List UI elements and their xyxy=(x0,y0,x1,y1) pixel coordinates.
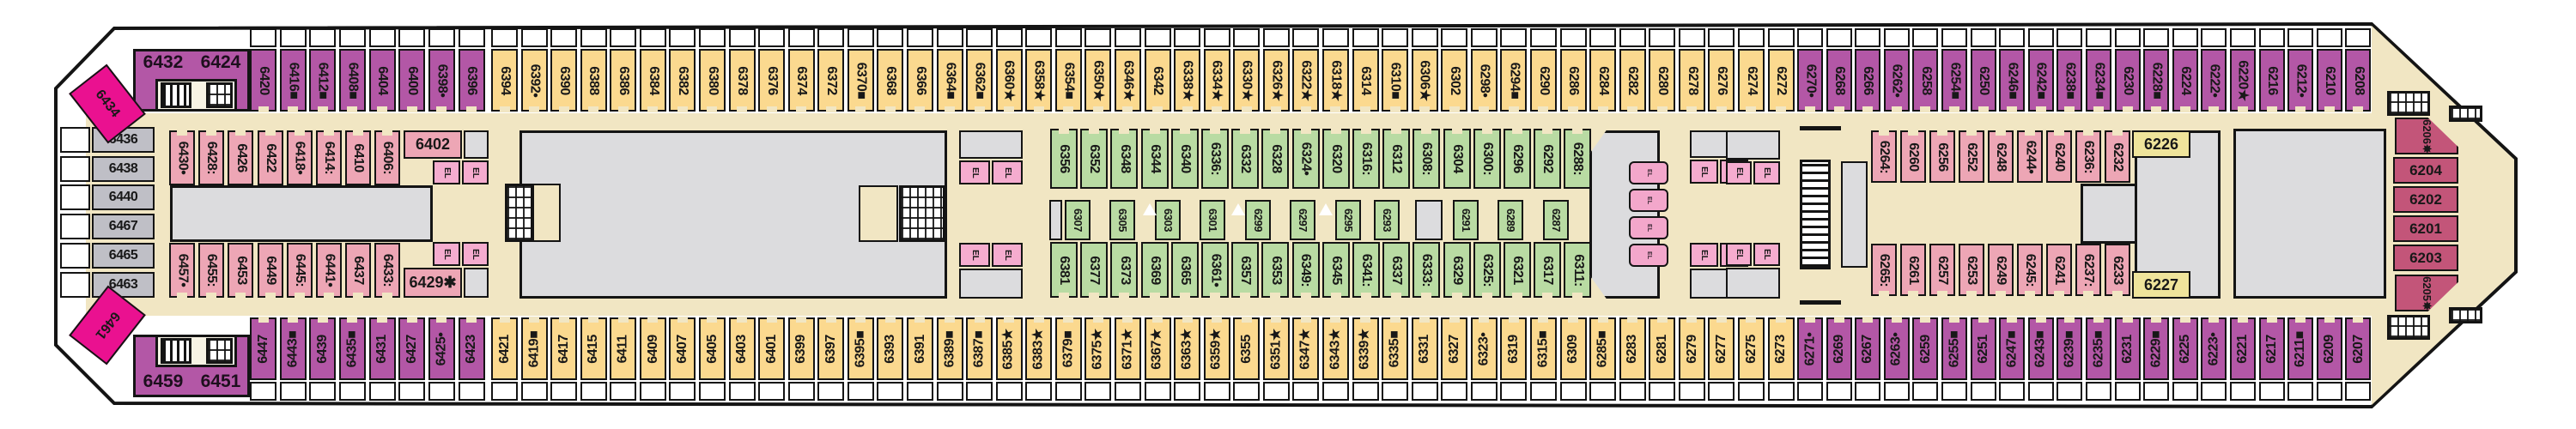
cabin-6270[interactable]: 6270• xyxy=(1797,49,1823,112)
cabin-6311[interactable]: 6311: xyxy=(1564,242,1591,298)
elevator[interactable]: EL xyxy=(462,160,489,184)
cabin-6232[interactable]: 6232 xyxy=(2105,130,2130,183)
balcony xyxy=(758,382,785,401)
cabin-6465[interactable]: 6465 xyxy=(92,243,155,269)
cabin-6263[interactable]: 6263• xyxy=(1884,317,1910,380)
cabin-6385[interactable]: 6385★ xyxy=(996,317,1023,380)
balcony xyxy=(669,28,696,47)
cabin-6253[interactable]: 6253 xyxy=(1959,244,1984,296)
cabin-6410[interactable]: 6410 xyxy=(345,130,371,185)
cabin-6426[interactable]: 6426 xyxy=(228,130,253,185)
cabin-6373[interactable]: 6373 xyxy=(1110,242,1138,298)
cabin-6443[interactable]: 6443■ xyxy=(280,317,307,380)
cabin-6393[interactable]: 6393 xyxy=(877,317,903,380)
balcony xyxy=(610,28,636,47)
cabin-6381[interactable]: 6381 xyxy=(1050,242,1078,298)
cabin-6275[interactable]: 6275 xyxy=(1738,317,1765,380)
cabin-6229[interactable]: 6229■ xyxy=(2143,317,2169,380)
cabin-6419[interactable]: 6419■ xyxy=(521,317,548,380)
cabin-6272[interactable]: 6272 xyxy=(1768,49,1795,112)
cabin-6401[interactable]: 6401 xyxy=(758,317,785,380)
cabin-6405[interactable]: 6405 xyxy=(699,317,726,380)
elevator[interactable]: EL xyxy=(462,242,489,266)
cabin-6407[interactable]: 6407 xyxy=(669,317,696,380)
cabin-6400[interactable]: 6400 xyxy=(398,49,425,112)
cabin-door xyxy=(2287,241,2297,247)
cabin-6309[interactable]: 6309 xyxy=(1560,317,1587,380)
cabin-6277[interactable]: 6277 xyxy=(1708,317,1735,380)
cabin-6271[interactable]: 6271• xyxy=(1797,317,1823,380)
cabin-6203[interactable]: 6203 xyxy=(2393,245,2458,271)
cabin-6383[interactable]: 6383★ xyxy=(1025,317,1052,380)
cabin-door xyxy=(1301,317,1311,323)
cabin-6356[interactable]: 6356 xyxy=(1050,129,1078,189)
cabin-6329[interactable]: 6329 xyxy=(1443,242,1471,298)
balcony xyxy=(550,28,577,47)
cabin-6358[interactable]: 6358★ xyxy=(1025,49,1052,112)
cabin-6328[interactable]: 6328 xyxy=(1261,129,1289,189)
cabin-6441[interactable]: 6441• xyxy=(316,243,342,298)
cabin-6361[interactable]: 6361• xyxy=(1201,242,1229,298)
cabin-6372[interactable]: 6372 xyxy=(817,49,844,112)
cabin-6340[interactable]: 6340 xyxy=(1171,129,1199,189)
cabin-6242[interactable]: 6242■ xyxy=(2028,49,2054,112)
cabin-6432[interactable]: 6432 xyxy=(135,51,191,74)
cabin-6430[interactable]: 6430• xyxy=(169,130,195,185)
cabin-6212[interactable]: 6212• xyxy=(2287,49,2313,112)
cabin-6331[interactable]: 6331 xyxy=(1412,317,1438,380)
cabin-6294[interactable]: 6294■ xyxy=(1500,49,1527,112)
cabin-6223[interactable]: 6223• xyxy=(2201,317,2227,380)
cabin-6306[interactable]: 6306★ xyxy=(1412,49,1438,112)
cabin-6269[interactable]: 6269 xyxy=(1826,317,1852,380)
cabin-6455[interactable]: 6455: xyxy=(198,243,224,298)
cabin-6343[interactable]: 6343★ xyxy=(1322,317,1349,380)
cabin-6420[interactable]: 6420 xyxy=(250,49,276,112)
cabin-door xyxy=(1598,317,1608,323)
cabin-6423[interactable]: 6423 xyxy=(459,317,485,380)
balcony xyxy=(1884,28,1910,47)
cabin-6334[interactable]: 6334★ xyxy=(1204,49,1230,112)
elevator[interactable]: EL xyxy=(1753,243,1780,266)
cabin-6370[interactable]: 6370■ xyxy=(848,49,874,112)
cabin-6396[interactable]: 6396 xyxy=(459,49,485,112)
cabin-6451[interactable]: 6451 xyxy=(193,371,248,393)
cabin-6379[interactable]: 6379■ xyxy=(1055,317,1082,380)
cabin-6433[interactable]: 6433: xyxy=(374,243,400,298)
cabin-6247[interactable]: 6247■ xyxy=(1999,317,2025,380)
cabin-6310[interactable]: 6310■ xyxy=(1382,49,1408,112)
cabin-6259[interactable]: 6259 xyxy=(1912,317,1938,380)
cabin-door xyxy=(1966,130,1977,136)
cabin-6217[interactable]: 6217 xyxy=(2259,317,2285,380)
cabin-6302[interactable]: 6302 xyxy=(1441,49,1467,112)
cabin-6293[interactable]: 6293 xyxy=(1374,200,1400,240)
cabin-6362[interactable]: 6362■ xyxy=(966,49,993,112)
cabin-6355[interactable]: 6355 xyxy=(1233,317,1260,380)
elevator[interactable]: EL xyxy=(433,160,460,184)
cabin-6316[interactable]: 6316: xyxy=(1352,129,1380,189)
cabin-6386[interactable]: 6386 xyxy=(610,49,636,112)
cabin-6245[interactable]: 6245: xyxy=(2017,244,2043,296)
cabin-6374[interactable]: 6374 xyxy=(788,49,815,112)
cabin-6339[interactable]: 6339★ xyxy=(1352,317,1379,380)
cabin-6237[interactable]: 6237: xyxy=(2075,244,2101,296)
cabin-6332[interactable]: 6332 xyxy=(1231,129,1259,189)
cabin-6402[interactable]: 6402 xyxy=(404,130,462,159)
cabin-6296[interactable]: 6296 xyxy=(1504,129,1531,189)
cabin-6353[interactable]: 6353 xyxy=(1261,242,1289,298)
elevator[interactable]: EL xyxy=(959,160,990,184)
cabin-6320[interactable]: 6320 xyxy=(1322,129,1350,189)
cabin-6440[interactable]: 6440 xyxy=(92,184,155,210)
cabin-6236[interactable]: 6236: xyxy=(2075,130,2101,183)
cabin-6324[interactable]: 6324• xyxy=(1292,129,1320,189)
cabin-6322[interactable]: 6322★ xyxy=(1292,49,1319,112)
cabin-6234[interactable]: 6234■ xyxy=(2086,49,2111,112)
cabin-6300[interactable]: 6300: xyxy=(1473,129,1501,189)
cabin-6201[interactable]: 6201 xyxy=(2393,215,2458,242)
cabin-6235[interactable]: 6235■ xyxy=(2086,317,2111,380)
cabin-6278[interactable]: 6278 xyxy=(1679,49,1705,112)
cabin-6301[interactable]: 6301 xyxy=(1200,200,1225,240)
cabin-6258[interactable]: 6258 xyxy=(1912,49,1938,112)
cabin-6286[interactable]: 6286 xyxy=(1560,49,1587,112)
cabin-6382[interactable]: 6382 xyxy=(669,49,696,112)
cabin-6326[interactable]: 6326★ xyxy=(1263,49,1290,112)
cabin-6230[interactable]: 6230 xyxy=(2115,49,2141,112)
cabin-6389[interactable]: 6389■ xyxy=(937,317,963,380)
cabin-6297[interactable]: 6297 xyxy=(1290,200,1315,240)
cabin-6404[interactable]: 6404 xyxy=(369,49,396,112)
cabin-6439[interactable]: 6439 xyxy=(309,317,336,380)
cabin-6327[interactable]: 6327 xyxy=(1441,317,1467,380)
cabin-6364[interactable]: 6364■ xyxy=(937,49,963,112)
cabin-6254[interactable]: 6254■ xyxy=(1941,49,1967,112)
cabin-6280[interactable]: 6280 xyxy=(1649,49,1675,112)
balcony xyxy=(2230,28,2256,47)
cabin-6257[interactable]: 6257 xyxy=(1929,244,1955,296)
cabin-6238[interactable]: 6238■ xyxy=(2057,49,2082,112)
cabin-door xyxy=(1331,128,1341,134)
cabin-6369[interactable]: 6369 xyxy=(1141,242,1169,298)
cabin-6264[interactable]: 6264: xyxy=(1871,130,1897,183)
cabin-6239[interactable]: 6239■ xyxy=(2057,317,2082,380)
cabin-door xyxy=(1122,106,1133,112)
cabin-6211[interactable]: 6211■ xyxy=(2287,317,2313,380)
cabin-6416[interactable]: 6416■ xyxy=(280,49,307,112)
cabin-6315[interactable]: 6315■ xyxy=(1530,317,1557,380)
cabin-6417[interactable]: 6417 xyxy=(550,317,577,380)
cabin-6346[interactable]: 6346★ xyxy=(1115,49,1141,112)
cabin-6351[interactable]: 6351★ xyxy=(1263,317,1290,380)
cabin-6354[interactable]: 6354■ xyxy=(1055,49,1082,112)
cabin-6249[interactable]: 6249 xyxy=(1988,244,2014,296)
balcony xyxy=(1971,382,1996,401)
cabin-6345[interactable]: 6345 xyxy=(1322,242,1350,298)
cabin-6268[interactable]: 6268 xyxy=(1826,49,1852,112)
cabin-door xyxy=(2064,106,2075,112)
cabin-6233[interactable]: 6233 xyxy=(2105,244,2130,296)
cabin-6295[interactable]: 6295 xyxy=(1335,200,1361,240)
cabin-6347[interactable]: 6347★ xyxy=(1292,317,1319,380)
cabin-6281[interactable]: 6281 xyxy=(1649,317,1675,380)
cabin-6366[interactable]: 6366 xyxy=(907,49,933,112)
cabin-6325[interactable]: 6325: xyxy=(1473,242,1501,298)
cabin-6248[interactable]: 6248 xyxy=(1988,130,2014,183)
cabin-door xyxy=(1716,317,1727,323)
cabin-door xyxy=(529,317,539,323)
cabin-6308[interactable]: 6308: xyxy=(1413,129,1440,189)
cabin-6371[interactable]: 6371★ xyxy=(1115,317,1141,380)
cabin-6319[interactable]: 6319 xyxy=(1500,317,1527,380)
cabin-6240[interactable]: 6240 xyxy=(2046,130,2072,183)
cabin-6415[interactable]: 6415 xyxy=(580,317,607,380)
cabin-door xyxy=(1242,106,1252,112)
cabin-6224[interactable]: 6224 xyxy=(2172,49,2198,112)
glass-elevator[interactable]: EL xyxy=(1629,216,1668,239)
cabin-6459[interactable]: 6459 xyxy=(135,371,191,393)
cabin-6304[interactable]: 6304 xyxy=(1443,129,1471,189)
cabin-6435[interactable]: 6435■ xyxy=(339,317,366,380)
cabin-6202[interactable]: 6202 xyxy=(2393,186,2458,213)
stairs xyxy=(206,82,233,108)
cabin-6204[interactable]: 6204 xyxy=(2393,157,2458,184)
cabin-6220[interactable]: 6220★ xyxy=(2230,49,2256,112)
cabin-6225[interactable]: 6225 xyxy=(2172,317,2198,380)
cabin-6342[interactable]: 6342 xyxy=(1145,49,1171,112)
cabin-6350[interactable]: 6350★ xyxy=(1084,49,1111,112)
cabin-6273[interactable]: 6273 xyxy=(1768,317,1795,380)
cabin-door xyxy=(559,106,569,112)
cabin-door xyxy=(1572,128,1583,134)
cabin-door xyxy=(1361,128,1371,134)
cabin-6390[interactable]: 6390 xyxy=(550,49,577,112)
cabin-6336[interactable]: 6336: xyxy=(1201,129,1229,189)
cabin-6378[interactable]: 6378 xyxy=(729,49,756,112)
elevator[interactable]: EL xyxy=(959,243,990,267)
cabin-6438[interactable]: 6438 xyxy=(92,156,155,182)
cabin-6267[interactable]: 6267 xyxy=(1855,317,1880,380)
balcony xyxy=(1530,382,1557,401)
cabin-6209[interactable]: 6209 xyxy=(2317,317,2342,380)
cabin-door xyxy=(1746,106,1756,112)
cabin-6431[interactable]: 6431 xyxy=(369,317,396,380)
cabin-6207[interactable]: 6207 xyxy=(2345,317,2371,380)
wall xyxy=(1800,126,1841,130)
cabin-6341[interactable]: 6341: xyxy=(1352,242,1380,298)
cabin-6291[interactable]: 6291 xyxy=(1453,200,1479,240)
cabin-6323[interactable]: 6323• xyxy=(1471,317,1498,380)
cabin-6408[interactable]: 6408■ xyxy=(339,49,366,112)
cabin-6403[interactable]: 6403 xyxy=(729,317,756,380)
glass-elevator[interactable]: EL xyxy=(1629,189,1668,212)
cabin-6359[interactable]: 6359★ xyxy=(1204,317,1230,380)
cabin-6262[interactable]: 6262• xyxy=(1884,49,1910,112)
balcony xyxy=(1941,28,1967,47)
cabin-6303[interactable]: 6303 xyxy=(1155,200,1181,240)
cabin-door xyxy=(1949,317,1959,323)
balcony xyxy=(2115,382,2141,401)
cabin-6290[interactable]: 6290 xyxy=(1530,49,1557,112)
cabin-6266[interactable]: 6266 xyxy=(1855,49,1880,112)
cabin-door xyxy=(2093,106,2104,112)
cabin-6447[interactable]: 6447 xyxy=(250,317,276,380)
cabin-6422[interactable]: 6422 xyxy=(258,130,283,185)
cabin-6241[interactable]: 6241 xyxy=(2046,244,2072,296)
cabin-6337[interactable]: 6337 xyxy=(1382,242,1410,298)
cabin-door xyxy=(1093,106,1103,112)
cabin-6244[interactable]: 6244• xyxy=(2017,130,2043,183)
cabin-6395[interactable]: 6395■ xyxy=(848,317,874,380)
elevator[interactable]: EL xyxy=(433,242,460,266)
cabin-6367[interactable]: 6367★ xyxy=(1145,317,1171,380)
cabin-6377[interactable]: 6377 xyxy=(1080,242,1108,298)
cabin-6222[interactable]: 6222• xyxy=(2201,49,2227,112)
cabin-6428[interactable]: 6428: xyxy=(198,130,224,185)
cabin-6384[interactable]: 6384 xyxy=(640,49,666,112)
cabin-6287[interactable]: 6287 xyxy=(1543,200,1569,240)
cabin-6406[interactable]: 6406: xyxy=(374,130,400,185)
cabin-6344[interactable]: 6344 xyxy=(1141,129,1169,189)
cabin-6252[interactable]: 6252 xyxy=(1959,130,1984,183)
cabin-6265[interactable]: 6265: xyxy=(1871,244,1897,296)
cabin-6260[interactable]: 6260 xyxy=(1900,130,1926,183)
cabin-6412[interactable]: 6412■ xyxy=(309,49,336,112)
cabin-door xyxy=(1452,128,1462,134)
cabin-6425[interactable]: 6425• xyxy=(428,317,455,380)
cabin-6392[interactable]: 6392• xyxy=(521,49,548,112)
cabin-6453[interactable]: 6453 xyxy=(228,243,253,298)
cabin-6365[interactable]: 6365 xyxy=(1171,242,1199,298)
cabin-6449[interactable]: 6449 xyxy=(258,243,283,298)
balcony xyxy=(877,382,903,401)
cabin-6429[interactable]: 6429✱ xyxy=(404,268,462,298)
cabin-door xyxy=(2353,106,2363,112)
cabin-6318[interactable]: 6318★ xyxy=(1322,49,1349,112)
cabin-6243[interactable]: 6243■ xyxy=(2028,317,2054,380)
cabin-6307[interactable]: 6307 xyxy=(1065,200,1091,240)
cabin-6208[interactable]: 6208 xyxy=(2345,49,2371,112)
cabin-6284[interactable]: 6284 xyxy=(1589,49,1616,112)
cabin-6226[interactable]: 6226 xyxy=(2132,130,2190,158)
cabin-6292[interactable]: 6292 xyxy=(1534,129,1561,189)
cabin-6388[interactable]: 6388 xyxy=(580,49,607,112)
cabin-door xyxy=(1391,293,1401,299)
cabin-6305[interactable]: 6305 xyxy=(1109,200,1135,240)
cabin-6421[interactable]: 6421 xyxy=(491,317,518,380)
cabin-6348[interactable]: 6348 xyxy=(1110,129,1138,189)
cabin-6414[interactable]: 6414: xyxy=(316,130,342,185)
cabin-6321[interactable]: 6321 xyxy=(1504,242,1531,298)
balcony xyxy=(1115,382,1141,401)
cabin-6317[interactable]: 6317 xyxy=(1534,242,1561,298)
cabin-6288[interactable]: 6288: xyxy=(1564,129,1591,189)
cabin-6330[interactable]: 6330★ xyxy=(1233,49,1260,112)
cabin-door xyxy=(1776,317,1786,323)
cabin-6299[interactable]: 6299 xyxy=(1245,200,1271,240)
cabin-door xyxy=(407,317,417,323)
cabin-door xyxy=(1657,106,1668,112)
cabin-6289[interactable]: 6289 xyxy=(1498,200,1523,240)
cabin-6276[interactable]: 6276 xyxy=(1708,49,1735,112)
cabin-6255[interactable]: 6255■ xyxy=(1941,317,1967,380)
cabin-6250[interactable]: 6250 xyxy=(1971,49,1996,112)
cabin-6335[interactable]: 6335■ xyxy=(1382,317,1408,380)
cabin-door xyxy=(1776,106,1786,112)
glass-elevator[interactable]: EL xyxy=(1629,244,1668,267)
cabin-6380[interactable]: 6380 xyxy=(699,49,726,112)
cabin-door xyxy=(2054,130,2064,136)
cabin-6338[interactable]: 6338★ xyxy=(1174,49,1200,112)
cabin-6314[interactable]: 6314 xyxy=(1352,49,1379,112)
cabin-door xyxy=(2007,317,2017,323)
elevator[interactable]: EL xyxy=(1690,160,1718,184)
cabin-6274[interactable]: 6274 xyxy=(1738,49,1765,112)
cabin-6283[interactable]: 6283 xyxy=(1619,317,1646,380)
cabin-6210[interactable]: 6210 xyxy=(2317,49,2342,112)
balcony xyxy=(937,28,963,47)
cabin-6246[interactable]: 6246■ xyxy=(1999,49,2025,112)
cabin-6411[interactable]: 6411 xyxy=(610,317,636,380)
cabin-6357[interactable]: 6357 xyxy=(1231,242,1259,298)
cabin-6261[interactable]: 6261 xyxy=(1900,244,1926,296)
cabin-6376[interactable]: 6376 xyxy=(758,49,785,112)
cabin-6312[interactable]: 6312 xyxy=(1382,129,1410,189)
cabin-6398[interactable]: 6398• xyxy=(428,49,455,112)
cabin-6368[interactable]: 6368 xyxy=(877,49,903,112)
cabin-6418[interactable]: 6418• xyxy=(287,130,313,185)
elevator[interactable]: EL xyxy=(992,160,1023,184)
cabin-6349[interactable]: 6349: xyxy=(1292,242,1320,298)
cabin-6397[interactable]: 6397 xyxy=(817,317,844,380)
cabin-6394[interactable]: 6394 xyxy=(491,49,518,112)
cabin-6279[interactable]: 6279 xyxy=(1679,317,1705,380)
cabin-6216[interactable]: 6216 xyxy=(2259,49,2285,112)
cabin-6256[interactable]: 6256 xyxy=(1929,130,1955,183)
cabin-6363[interactable]: 6363★ xyxy=(1174,317,1200,380)
elevator[interactable]: EL xyxy=(1726,243,1752,266)
cabin-6228[interactable]: 6228■ xyxy=(2143,49,2169,112)
cabin-6360[interactable]: 6360★ xyxy=(996,49,1023,112)
cabin-6445[interactable]: 6445: xyxy=(287,243,313,298)
glass-elevator[interactable]: EL xyxy=(1629,161,1668,184)
cabin-6285[interactable]: 6285■ xyxy=(1589,317,1616,380)
cabin-6457[interactable]: 6457• xyxy=(169,243,195,298)
cabin-6227[interactable]: 6227 xyxy=(2132,271,2190,299)
cabin-6399[interactable]: 6399 xyxy=(788,317,815,380)
cabin-6251[interactable]: 6251 xyxy=(1971,317,1996,380)
cabin-6424[interactable]: 6424 xyxy=(193,51,248,74)
cabin-6298[interactable]: 6298• xyxy=(1471,49,1498,112)
cabin-6387[interactable]: 6387■ xyxy=(966,317,993,380)
cabin-6231[interactable]: 6231 xyxy=(2115,317,2141,380)
cabin-6333[interactable]: 6333: xyxy=(1413,242,1440,298)
cabin-6375[interactable]: 6375★ xyxy=(1084,317,1111,380)
cabin-6427[interactable]: 6427 xyxy=(398,317,425,380)
cabin-6352[interactable]: 6352 xyxy=(1080,129,1108,189)
cabin-6391[interactable]: 6391 xyxy=(907,317,933,380)
elevator[interactable]: EL xyxy=(1753,161,1780,184)
elevator[interactable]: EL xyxy=(992,243,1023,267)
cabin-6409[interactable]: 6409 xyxy=(640,317,666,380)
cabin-6282[interactable]: 6282 xyxy=(1619,49,1646,112)
cabin-6467[interactable]: 6467 xyxy=(92,214,155,239)
cabin-6437[interactable]: 6437 xyxy=(345,243,371,298)
elevator[interactable]: EL xyxy=(1690,243,1718,267)
elevator[interactable]: EL xyxy=(1726,161,1752,184)
cabin-6221[interactable]: 6221 xyxy=(2230,317,2256,380)
